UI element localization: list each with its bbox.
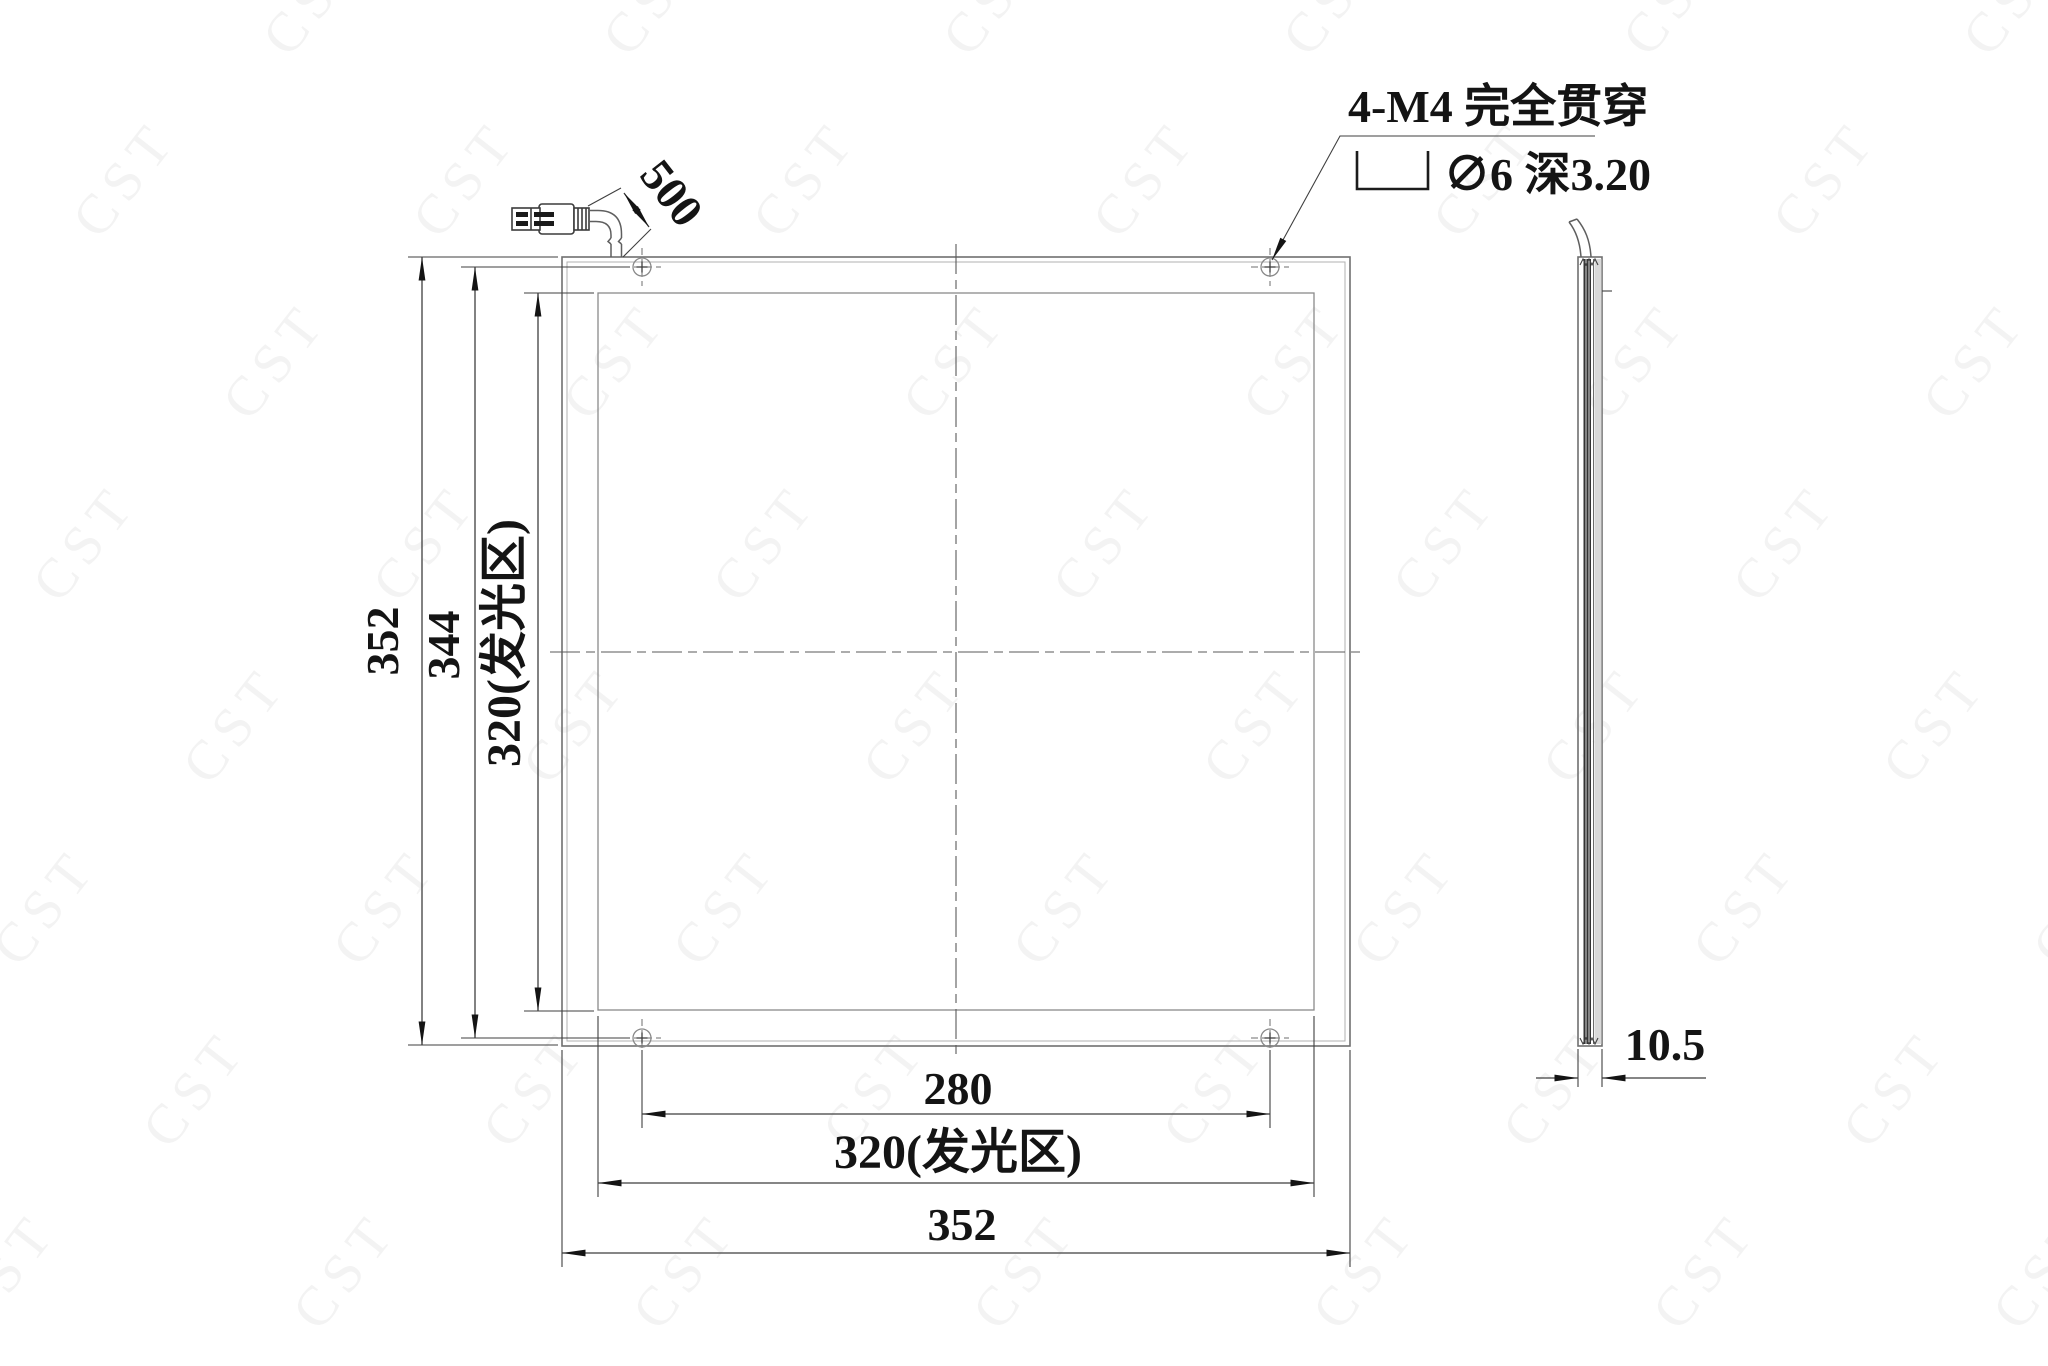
dim-bottom-holes-280: 280 <box>642 1050 1270 1128</box>
cable-crimp <box>574 208 589 230</box>
connector-pin-icon <box>516 212 554 217</box>
connector-body <box>539 204 574 234</box>
dim-label-outer-height: 352 <box>357 607 408 676</box>
side-layer-dark <box>1584 259 1592 1044</box>
connector-pin-housing <box>512 208 540 230</box>
connector-pin-icon <box>516 221 554 226</box>
counterbore-icon <box>1357 151 1428 189</box>
dim-label-hole-spacing-vertical: 344 <box>418 611 469 680</box>
side-cable <box>1569 219 1591 257</box>
dim-label-outer-width: 352 <box>928 1199 997 1250</box>
side-view <box>1569 219 1612 1046</box>
mounting-note-text: 4-M4 完全贯穿 <box>1348 81 1648 132</box>
counterbore-spec-text: ∅6 深3.20 <box>1444 149 1651 200</box>
side-layer-gray <box>1595 259 1602 1044</box>
technical-drawing-page: { "watermark": { "text": "CST" }, "color… <box>0 0 2048 1366</box>
dim-label-luminous-width: 320(发光区) <box>834 1126 1082 1179</box>
panel-light-drawing: 500 352 344 320(发光区) 280 320(发光区) 352 <box>0 0 2048 1366</box>
dim-label-hole-spacing-horizontal: 280 <box>924 1063 993 1114</box>
mounting-hole-top-right <box>1251 248 1289 286</box>
dim-label-thickness: 10.5 <box>1625 1019 1706 1070</box>
dim-side-thickness: 10.5 <box>1536 1019 1706 1087</box>
front-view <box>550 244 1362 1058</box>
power-cable-assembly <box>512 204 626 257</box>
cable-outer-line <box>589 211 622 258</box>
mounting-hole-callout: 4-M4 完全贯穿 ∅6 深3.20 <box>1272 81 1651 260</box>
dim-label-cable-length: 500 <box>631 150 714 236</box>
dim-label-luminous-height: 320(发光区) <box>478 519 531 767</box>
